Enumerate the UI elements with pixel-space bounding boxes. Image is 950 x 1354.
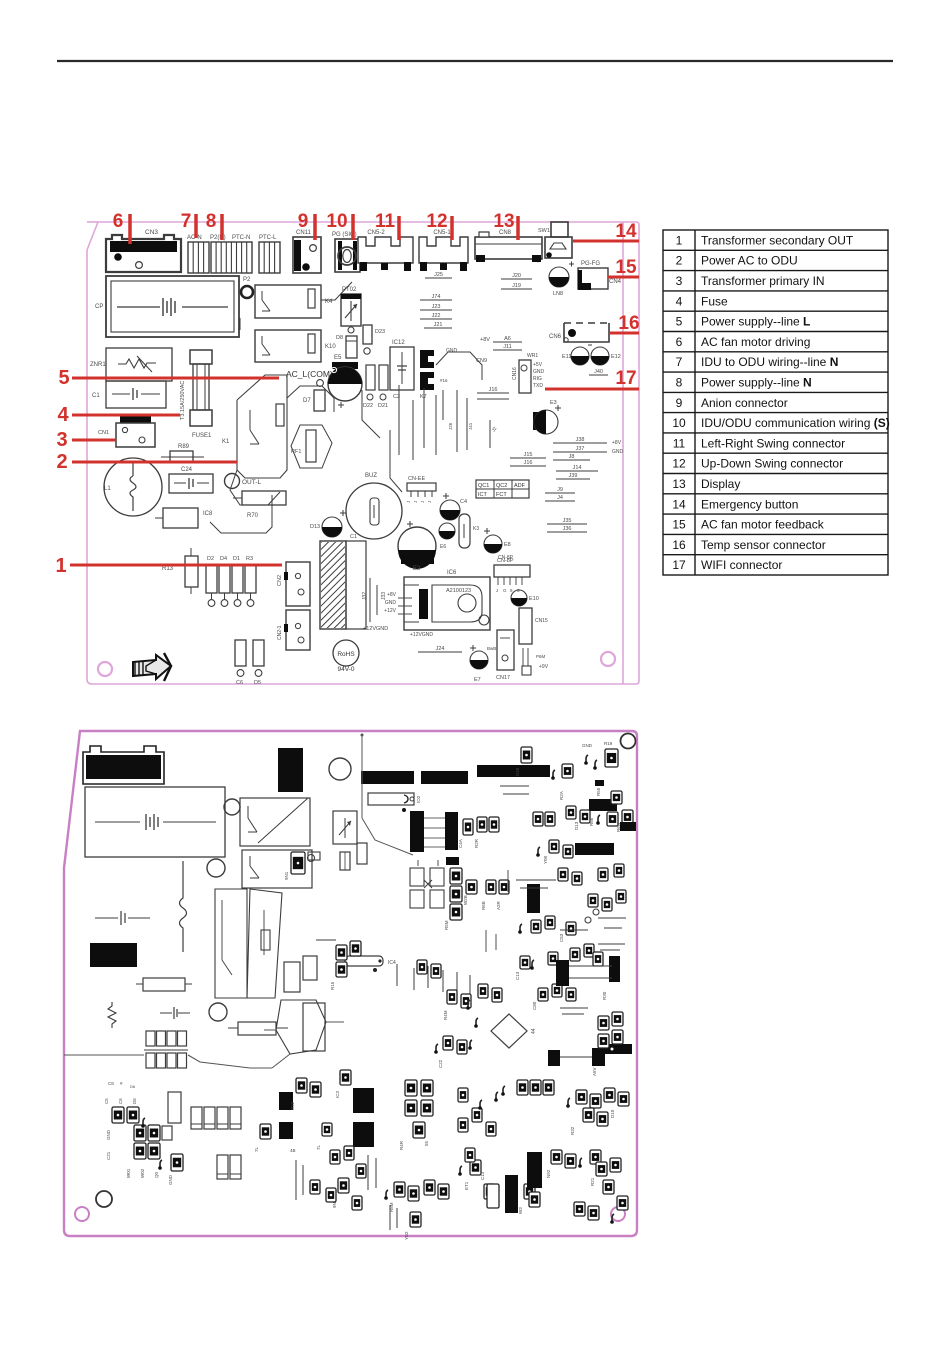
svg-text:C1: C1 [92, 393, 100, 399]
svg-text:D13: D13 [574, 821, 579, 830]
svg-text:17: 17 [672, 558, 686, 572]
svg-text:IC3: IC3 [335, 1091, 340, 1099]
svg-text:9: 9 [676, 396, 683, 410]
svg-text:+5V: +5V [533, 362, 543, 368]
svg-text:E10: E10 [529, 596, 539, 602]
svg-text:11: 11 [673, 436, 686, 450]
svg-text:C53: C53 [559, 933, 564, 942]
svg-text:AC_L(COM): AC_L(COM) [286, 369, 333, 379]
svg-text:J: J [496, 588, 498, 593]
svg-text:ZNR1: ZNR1 [90, 362, 106, 368]
svg-text:Anion connector: Anion connector [701, 396, 788, 410]
svg-text:Up-Down Swing connector: Up-Down Swing connector [701, 457, 843, 471]
svg-text:D2: D2 [207, 556, 214, 562]
svg-text:WIFI connector: WIFI connector [701, 558, 782, 572]
svg-text:J25: J25 [434, 272, 443, 278]
svg-text:P2: P2 [243, 277, 251, 283]
svg-text:J14: J14 [573, 465, 582, 471]
svg-text:11: 11 [375, 211, 396, 232]
svg-text:ET1: ET1 [464, 1181, 469, 1190]
svg-text:R15: R15 [330, 981, 335, 990]
svg-text:CN1: CN1 [98, 430, 109, 436]
svg-text:R4R: R4R [399, 1140, 404, 1150]
svg-text:Transformer secondary OUT: Transformer secondary OUT [701, 233, 854, 247]
svg-text:GND: GND [446, 348, 458, 354]
svg-text:44: 44 [531, 1028, 537, 1034]
svg-text:RoHS: RoHS [337, 651, 355, 658]
svg-text:D22: D22 [363, 403, 373, 409]
svg-text:J40: J40 [594, 369, 603, 375]
svg-text:TXD: TXD [533, 383, 543, 389]
svg-text:Transformer primary IN: Transformer primary IN [701, 274, 825, 288]
svg-text:J74: J74 [432, 294, 441, 300]
svg-text:D4: D4 [220, 556, 227, 562]
svg-text:OUT-L: OUT-L [242, 479, 262, 486]
svg-text:+8V: +8V [480, 337, 490, 343]
svg-text:K7: K7 [420, 394, 427, 400]
svg-text:+9V: +9V [539, 664, 549, 670]
svg-text:94V-0: 94V-0 [338, 666, 355, 673]
svg-text:Y08: Y08 [543, 855, 548, 864]
svg-text:Fuse: Fuse [701, 294, 728, 308]
svg-text:G: G [503, 588, 507, 593]
svg-text:Emergency button: Emergency button [701, 497, 798, 511]
svg-text:+12VGND: +12VGND [363, 626, 388, 632]
svg-text:5: 5 [58, 367, 69, 389]
svg-text:7: 7 [676, 355, 683, 369]
svg-text:R4M: R4M [443, 1010, 448, 1020]
svg-text:D5: D5 [254, 680, 261, 686]
svg-text:13: 13 [672, 477, 686, 491]
svg-text:E8: E8 [504, 542, 511, 548]
svg-text:R66: R66 [589, 817, 594, 826]
svg-text:AC fan motor driving: AC fan motor driving [701, 335, 810, 349]
svg-text:P6M: P6M [536, 654, 546, 659]
svg-text:R3: R3 [246, 556, 253, 562]
svg-text:Power supply--line L: Power supply--line L [701, 315, 810, 329]
svg-text:J15: J15 [524, 452, 533, 458]
svg-text:J16: J16 [489, 387, 498, 393]
svg-text:+12V: +12V [384, 608, 396, 614]
svg-text:16: 16 [672, 538, 686, 552]
svg-text:CN4: CN4 [609, 279, 622, 285]
svg-text:9N: 9N [332, 1202, 337, 1208]
svg-text:IC12: IC12 [392, 340, 405, 346]
svg-text:BUZ: BUZ [365, 473, 377, 479]
svg-text:GND: GND [612, 449, 624, 455]
svg-text:1: 1 [676, 233, 683, 247]
svg-text:Temp sensor connector: Temp sensor connector [701, 538, 826, 552]
svg-text:7L: 7L [316, 1144, 321, 1150]
svg-text:R70: R70 [247, 513, 259, 519]
svg-text:C4: C4 [460, 499, 467, 505]
svg-text:W2B: W2B [463, 895, 468, 905]
svg-text:15: 15 [615, 257, 637, 278]
svg-text:14: 14 [672, 497, 686, 511]
svg-text:J21: J21 [434, 322, 443, 328]
svg-text:J41: J41 [468, 422, 473, 430]
svg-text:E3: E3 [550, 400, 557, 406]
svg-text:J35: J35 [563, 518, 572, 524]
svg-text:R6B: R6B [481, 901, 486, 910]
svg-text:IO2: IO2 [416, 795, 421, 803]
svg-text:J11: J11 [503, 344, 511, 350]
svg-text:A2R: A2R [496, 900, 501, 910]
svg-text:CN3: CN3 [145, 229, 158, 236]
svg-text:D8: D8 [336, 335, 343, 341]
svg-text:CN-8P: CN-8P [498, 555, 514, 561]
svg-text:R55: R55 [596, 787, 601, 796]
svg-text:J32: J32 [362, 592, 368, 600]
svg-text:PTC-L: PTC-L [259, 235, 277, 241]
svg-text:BwB: BwB [487, 646, 496, 651]
svg-text:J9: J9 [557, 487, 563, 493]
svg-text:PTC-N: PTC-N [232, 235, 250, 241]
svg-text:CN2: CN2 [277, 575, 283, 586]
svg-text:R5M: R5M [444, 920, 449, 930]
svg-text:CN15: CN15 [535, 618, 548, 624]
svg-text:IC4: IC4 [388, 960, 396, 966]
svg-text:E6: E6 [440, 544, 446, 550]
svg-text:SW1: SW1 [538, 228, 550, 234]
svg-text:+8V: +8V [387, 592, 397, 598]
svg-text:QC1: QC1 [478, 483, 489, 489]
svg-text:K1: K1 [222, 439, 230, 445]
svg-text:C13: C13 [515, 971, 520, 980]
svg-text:C80: C80 [532, 1001, 537, 1010]
svg-text:J22: J22 [432, 313, 441, 319]
svg-text:CP: CP [95, 304, 103, 310]
svg-text:D23: D23 [375, 329, 385, 335]
svg-text:3: 3 [676, 274, 683, 288]
svg-text:GND: GND [385, 600, 397, 606]
svg-text:6: 6 [113, 211, 124, 232]
svg-text:D40: D40 [515, 767, 520, 776]
svg-text:K3: K3 [473, 526, 479, 532]
svg-text:LN8: LN8 [553, 291, 563, 297]
svg-text:T3.15A/250VAC: T3.15A/250VAC [180, 381, 186, 420]
svg-text:W3: W3 [518, 1207, 523, 1214]
svg-text:Left-Right Swing connector: Left-Right Swing connector [701, 436, 845, 450]
svg-text:4B: 4B [290, 1148, 296, 1153]
svg-text:PG-FG: PG-FG [581, 261, 600, 267]
svg-text:RF1: RF1 [291, 449, 301, 455]
svg-text:Q0: Q0 [154, 1171, 159, 1178]
svg-text:J19: J19 [512, 283, 521, 289]
svg-text:14: 14 [615, 221, 637, 242]
svg-text:D6: D6 [130, 1084, 136, 1089]
svg-text:C8: C8 [108, 1081, 114, 1086]
svg-text:10: 10 [672, 416, 686, 430]
svg-text:QC2: QC2 [496, 483, 507, 489]
svg-text:10: 10 [326, 211, 347, 232]
svg-text:J: J [420, 501, 425, 503]
svg-text:D7: D7 [303, 398, 311, 404]
svg-text:J23: J23 [432, 304, 441, 310]
svg-text:ADF: ADF [514, 483, 526, 489]
svg-text:E11: E11 [562, 354, 571, 360]
svg-text:J37: J37 [576, 446, 585, 452]
svg-text:C13: C13 [480, 1171, 485, 1180]
svg-text:3: 3 [56, 429, 67, 451]
svg-text:D6: D6 [132, 1098, 137, 1104]
svg-text:C24: C24 [181, 467, 193, 473]
svg-text:J20: J20 [512, 273, 521, 279]
svg-text:12: 12 [672, 457, 686, 471]
svg-text:RIG: RIG [533, 376, 542, 382]
svg-text:+8V: +8V [612, 440, 622, 446]
svg-text:J: J [427, 501, 432, 503]
svg-text:7: 7 [181, 211, 192, 232]
svg-text:E5: E5 [334, 355, 342, 361]
svg-text:Power AC to ODU: Power AC to ODU [701, 254, 798, 268]
svg-text:C6: C6 [118, 1098, 123, 1104]
svg-text:R30: R30 [602, 991, 607, 1000]
svg-text:2: 2 [56, 451, 67, 473]
svg-text:C5: C5 [104, 1098, 109, 1104]
svg-text:Display: Display [701, 477, 740, 491]
svg-text:J8: J8 [569, 454, 575, 460]
svg-text:9N1: 9N1 [284, 871, 289, 880]
svg-text:W01: W01 [126, 1168, 131, 1178]
svg-text:IDU/ODU communication wiring (: IDU/ODU communication wiring (S) [701, 416, 890, 430]
svg-text:J38: J38 [576, 437, 585, 443]
svg-text:GND: GND [582, 743, 593, 748]
svg-text:C22: C22 [438, 1059, 443, 1068]
svg-text:R13: R13 [162, 566, 174, 572]
svg-text:A6: A6 [504, 336, 511, 342]
svg-text:5: 5 [676, 315, 683, 329]
svg-text:B12: B12 [290, 1101, 295, 1110]
svg-text:R89: R89 [178, 444, 190, 450]
svg-text:E2: E2 [413, 566, 421, 572]
svg-text:CN6: CN6 [549, 334, 562, 340]
svg-text:7L: 7L [254, 1146, 259, 1152]
svg-text:CN17: CN17 [496, 675, 510, 681]
svg-text:J24: J24 [436, 646, 445, 652]
svg-text:C4A: C4A [458, 839, 463, 848]
svg-text:J26: J26 [448, 422, 453, 430]
svg-text:#16: #16 [440, 378, 448, 383]
svg-text:R2A: R2A [559, 791, 564, 800]
svg-text:A5V: A5V [592, 1067, 597, 1076]
svg-text:8: 8 [206, 211, 217, 232]
svg-text:CN16: CN16 [512, 367, 518, 380]
svg-text:2: 2 [676, 254, 683, 268]
svg-text:R19: R19 [604, 741, 613, 746]
svg-text:R21: R21 [590, 1177, 595, 1186]
svg-text:R2R: R2R [474, 838, 479, 848]
svg-text:GND: GND [106, 1129, 111, 1140]
svg-text:13: 13 [493, 211, 514, 232]
svg-text:17: 17 [615, 368, 636, 389]
svg-text:E7: E7 [474, 677, 481, 683]
svg-text:Power supply--line N: Power supply--line N [701, 376, 812, 390]
svg-text:ICT: ICT [478, 492, 488, 498]
svg-text:IC6: IC6 [447, 570, 457, 576]
svg-text:CN-EE: CN-EE [408, 476, 425, 482]
svg-text:4: 4 [676, 294, 683, 308]
svg-text:IDU to ODU wiring--line N: IDU to ODU wiring--line N [701, 355, 838, 369]
svg-text:CN2-1: CN2-1 [277, 625, 283, 640]
svg-text:J: J [406, 501, 411, 503]
svg-text:GND: GND [168, 1174, 173, 1185]
svg-text:J36: J36 [563, 526, 572, 532]
svg-text:IC8: IC8 [203, 511, 213, 517]
svg-text:FCT: FCT [496, 492, 507, 498]
svg-text:R32: R32 [570, 1126, 575, 1135]
svg-text:55: 55 [424, 1140, 429, 1146]
svg-text:J4: J4 [557, 495, 563, 501]
svg-text:J16: J16 [524, 460, 533, 466]
svg-text:9: 9 [298, 211, 309, 232]
svg-text:C21: C21 [106, 1151, 111, 1160]
svg-text:FUSE1: FUSE1 [192, 433, 212, 439]
svg-text:+12VGND: +12VGND [410, 632, 433, 638]
svg-text:1: 1 [55, 555, 66, 577]
svg-text:C1: C1 [350, 534, 357, 540]
svg-text:E12: E12 [611, 354, 621, 360]
svg-text:YB2: YB2 [404, 1231, 409, 1240]
svg-text:GND: GND [533, 369, 545, 375]
svg-text:6: 6 [676, 335, 683, 349]
svg-text:D1: D1 [233, 556, 240, 562]
svg-text:N92: N92 [546, 1169, 551, 1178]
svg-text:15: 15 [672, 518, 686, 532]
svg-text:K10: K10 [325, 344, 336, 350]
svg-text:J39: J39 [569, 473, 578, 479]
svg-text:12: 12 [426, 211, 447, 232]
svg-text:TXD: TXD [489, 0, 499, 1]
svg-text:4: 4 [57, 404, 69, 426]
svg-text:A2100123: A2100123 [446, 588, 471, 594]
svg-text:16: 16 [618, 313, 639, 334]
svg-text:D13: D13 [310, 524, 320, 530]
svg-text:8: 8 [676, 376, 683, 390]
svg-text:AC fan motor feedback: AC fan motor feedback [701, 518, 825, 532]
svg-text:J: J [413, 501, 418, 503]
svg-text:D10: D10 [610, 1109, 615, 1118]
svg-text:D21: D21 [378, 403, 388, 409]
svg-text:C6: C6 [236, 680, 243, 686]
svg-text:L1: L1 [104, 486, 111, 492]
svg-text:WR1: WR1 [527, 353, 538, 359]
svg-text:W02: W02 [140, 1168, 145, 1178]
